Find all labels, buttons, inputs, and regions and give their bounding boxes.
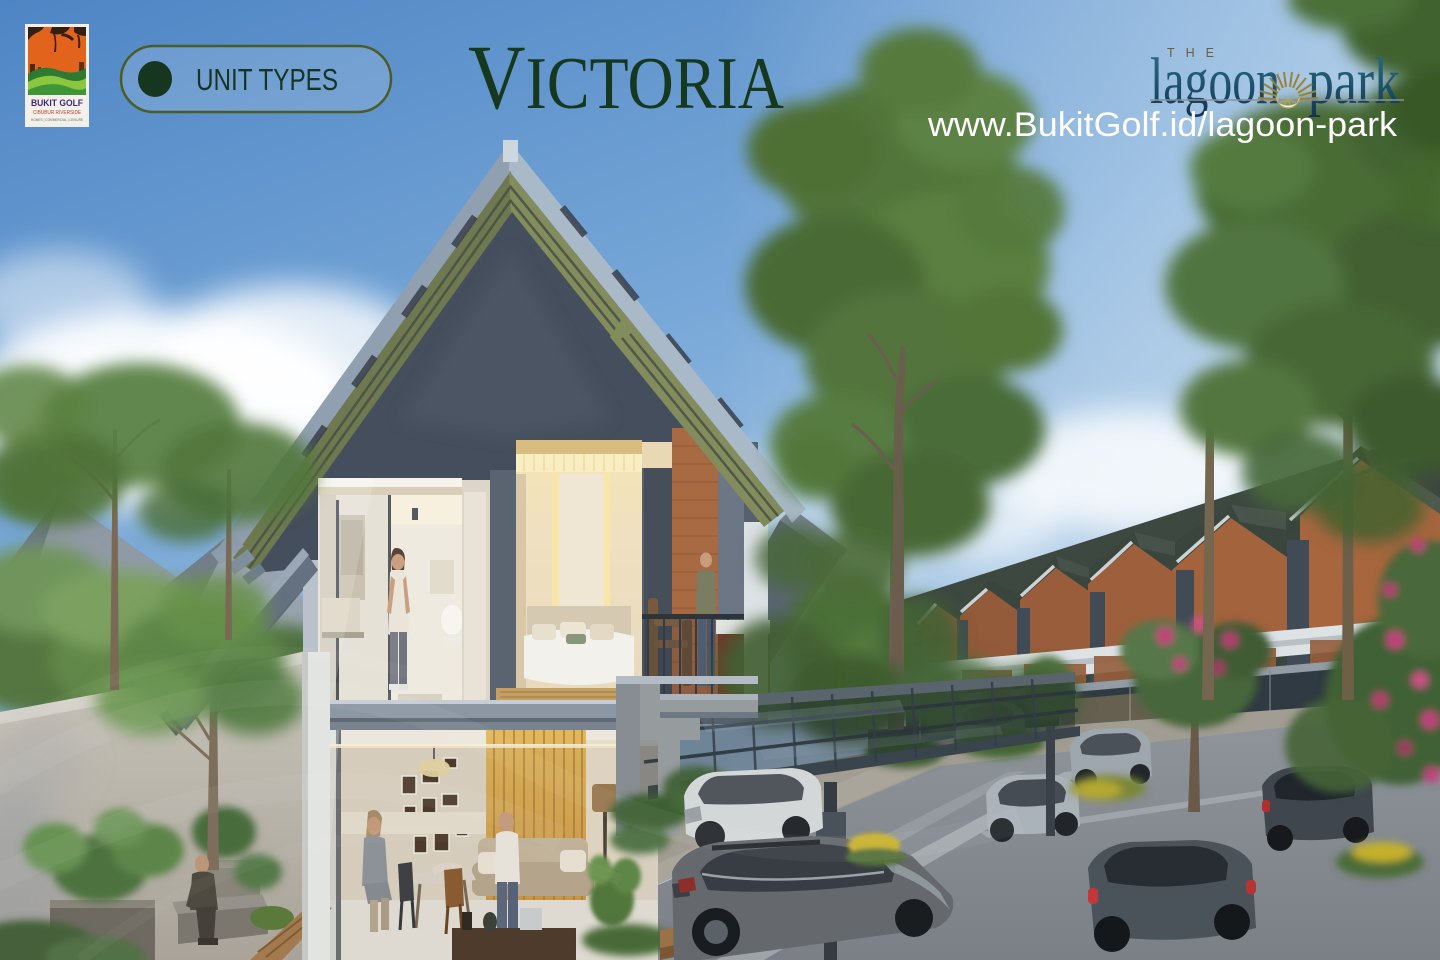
svg-text:UNIT TYPES: UNIT TYPES — [196, 62, 338, 97]
svg-text:CIBUBUR RIVERSIDE: CIBUBUR RIVERSIDE — [33, 110, 82, 116]
svg-text:www.BukitGolf.id/lagoon-park: www.BukitGolf.id/lagoon-park — [927, 106, 1398, 144]
svg-text:HOMES | COMMERCIAL | LEISURE: HOMES | COMMERCIAL | LEISURE — [31, 117, 83, 122]
svg-text:BUKIT GOLF: BUKIT GOLF — [31, 98, 83, 109]
